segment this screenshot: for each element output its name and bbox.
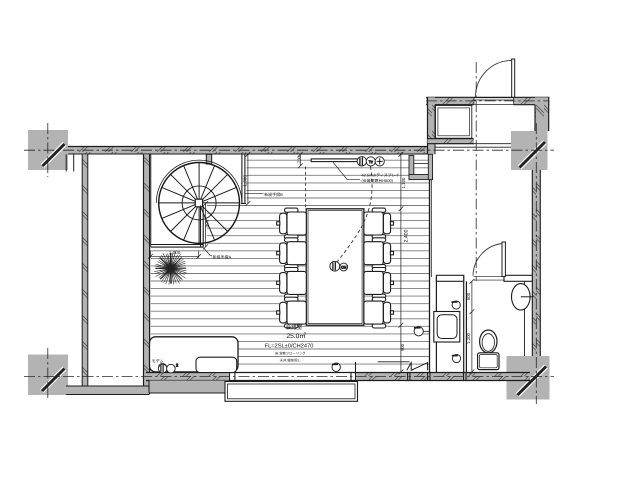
svg-text:600: 600 [466,292,471,300]
svg-text:1,000: 1,000 [169,250,181,255]
svg-text:900: 900 [400,343,405,351]
svg-text:CH: CH [341,266,347,270]
svg-text:2,400: 2,400 [404,229,410,242]
svg-text:1,100: 1,100 [401,177,406,189]
svg-text:230: 230 [296,155,301,163]
svg-text:床:置敷フローリング: 床:置敷フローリング [275,351,306,355]
svg-text:天井:躯体現し: 天井:躯体現し [280,358,302,362]
svg-text:(会議用鏡台H800): (会議用鏡台H800) [362,178,394,183]
svg-text:モデム: モデム [152,359,164,364]
svg-text:1,200: 1,200 [466,332,471,344]
svg-text:新設手摺B: 新設手摺B [264,192,283,197]
svg-text:25.0㎡: 25.0㎡ [286,332,306,340]
svg-text:Tv: Tv [369,160,373,164]
svg-text:会議室: 会議室 [286,324,303,331]
svg-text:新設手摺A: 新設手摺A [213,254,232,259]
svg-text:42.5inchディスプレイ: 42.5inchディスプレイ [362,172,400,177]
svg-text:900: 900 [205,219,210,227]
svg-text:FL=2SL±0/CH2470: FL=2SL±0/CH2470 [265,342,314,349]
svg-text:1,000: 1,000 [242,175,247,187]
